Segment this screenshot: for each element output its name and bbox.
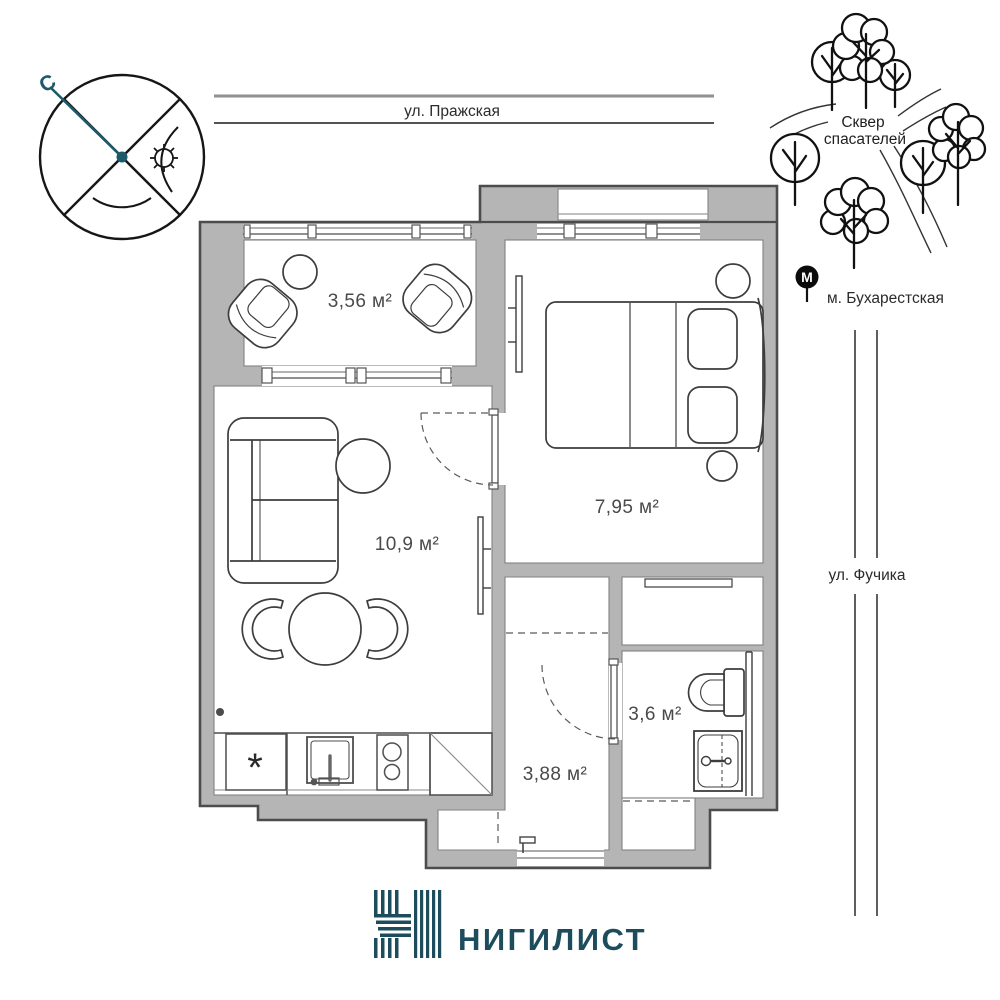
logo: НИГИЛИСТ [374,890,647,958]
metro-station-label: м. Бухарестская [827,290,944,307]
kitchen-freezer-mark: * [247,746,263,790]
pillow [688,309,737,369]
street-fuchika-label: ул. Фучика [828,567,905,584]
site-plan-figure: С ул. Пражская ул. Фучика [0,0,1000,1000]
wardrobe-shelf [645,579,732,587]
riser-dot [216,708,224,716]
bed [546,298,765,452]
tree-icon [929,104,985,205]
sun-icon [150,144,178,172]
logo-mark [374,890,441,958]
nightstand [707,451,737,481]
bedroom-parapet [558,189,708,220]
dining-table [289,593,361,665]
room-label-living: 10,9 м² [375,534,439,555]
bedroom-window [537,224,700,239]
street-top: ул. Пражская [214,96,714,123]
metro-letter: М [801,269,813,285]
room-label-balcony: 3,56 м² [328,291,392,312]
door-handle-icon [520,837,535,843]
tree-icon [880,60,910,107]
nightstand [716,264,750,298]
brand-name: НИГИЛИСТ [458,922,647,957]
side-table [336,439,390,493]
park-label-line2: спасателей [824,131,906,148]
coffee-table [283,255,317,289]
toilet [689,669,745,716]
floor-plan-page: С ул. Пражская ул. Фучика [0,0,1000,1000]
washbasin [694,731,742,791]
metro: М м. Бухарестская [796,266,944,308]
street-prazhskaya-label: ул. Пражская [404,103,500,120]
floor-plan: * [200,186,777,868]
room-label-bedroom: 7,95 м² [595,497,659,518]
tree-icon [821,178,888,268]
park-label-line1: Сквер [841,114,884,131]
sofa [228,418,338,583]
balcony-living-window [262,366,452,386]
room-label-bathroom: 3,6 м² [628,704,681,725]
pillow [688,387,737,443]
balcony-window [243,224,472,239]
compass: С [35,70,204,239]
niche-floor [622,798,695,850]
room-label-hallway: 3,88 м² [523,764,587,785]
street-right: ул. Фучика [828,330,905,916]
park: Сквер спасателей [770,14,985,268]
tree-icon [833,14,894,108]
